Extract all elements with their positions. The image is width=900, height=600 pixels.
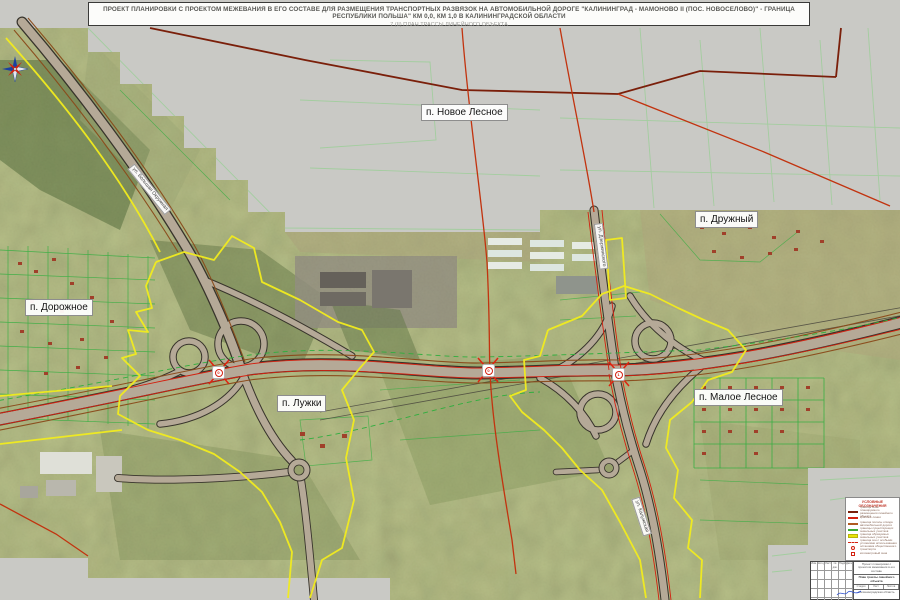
stamp-org: Калининградская область	[854, 590, 899, 595]
km-marker-value: 1	[615, 371, 623, 379]
legend-swatch-red-dashed-line	[848, 542, 858, 543]
km-marker-0-left: 0	[212, 366, 225, 379]
legend-item: остановка общественного транспорта	[848, 545, 897, 551]
km-marker-1-right: 1	[612, 368, 625, 381]
title-block-stamp: Изм. Кол.уч. Лист № док. Подп. Дата Прое…	[810, 561, 900, 600]
stamp-col-koluch: Кол.уч.	[818, 562, 825, 571]
settlement-label-luzhki: п. Лужки	[277, 395, 326, 412]
stamp-right: Проект планировки с проектом межевания в…	[854, 562, 899, 599]
stamp-col-podp: Подп.	[839, 562, 846, 571]
legend-swatch-orange-line	[848, 523, 858, 524]
map-canvas	[0, 0, 900, 600]
legend-swatch-red-line	[848, 517, 858, 518]
km-marker-value: 0	[485, 367, 493, 375]
legend-swatch-square	[848, 552, 858, 557]
legend-swatch-yellow-line	[848, 534, 858, 538]
stamp-revision-grid: Изм. Кол.уч. Лист № док. Подп. Дата	[811, 562, 854, 599]
stamp-note: Проект планировки с проектом межевания в…	[854, 562, 899, 575]
plan-sheet: ПРОЕКТ ПЛАНИРОВКИ С ПРОЕКТОМ МЕЖЕВАНИЯ В…	[0, 0, 900, 600]
stamp-col-list: Лист	[825, 562, 832, 571]
stamp-col-izm: Изм.	[811, 562, 818, 571]
km-marker-0-mid: 0	[482, 364, 495, 377]
legend-panel: УСЛОВНЫЕ ОБОЗНАЧЕНИЯ граница зоны планир…	[845, 497, 900, 561]
settlement-label-druzhny: п. Дружный	[695, 211, 758, 228]
legend-item: километровый знак	[848, 551, 897, 557]
title-bar: ПРОЕКТ ПЛАНИРОВКИ С ПРОЕКТОМ МЕЖЕВАНИЯ В…	[88, 2, 810, 26]
km-marker-value: 0	[215, 369, 223, 377]
stamp-col-data: Дата	[846, 562, 853, 571]
legend-swatch-darkred-line	[848, 511, 858, 514]
settlement-label-novoe-lesnoe: п. Новое Лесное	[421, 104, 508, 121]
settlement-label-maloe-lesnoe: п. Малое Лесное	[694, 389, 783, 406]
legend-swatch-circle	[848, 546, 858, 551]
stamp-doc-title: План трассы линейного объекта	[854, 575, 899, 585]
legend-swatch-green-line	[848, 529, 858, 530]
sheet-subtitle: 7 (II) ПЛАН ТРАССЫ ЛИНЕЙНОГО ОБЪЕКТА	[89, 22, 809, 28]
sheet-title: ПРОЕКТ ПЛАНИРОВКИ С ПРОЕКТОМ МЕЖЕВАНИЯ В…	[89, 6, 809, 20]
stamp-col-dok: № док.	[832, 562, 839, 571]
settlement-label-dorozhnoe: п. Дорожное	[25, 299, 93, 316]
